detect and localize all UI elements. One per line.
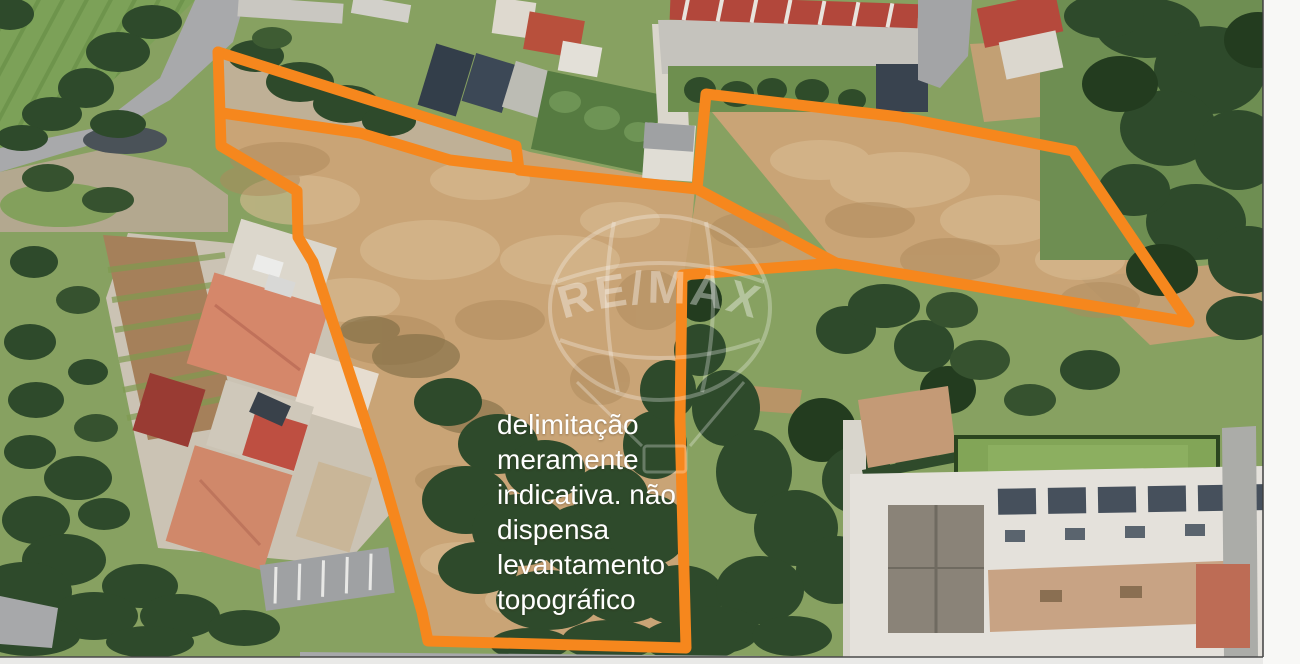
disclaimer-line: levantamento xyxy=(497,547,676,582)
disclaimer-line: indicativa. não xyxy=(497,477,676,512)
disclaimer-text: delimitação meramente indicativa. não di… xyxy=(497,407,676,617)
industrial-building xyxy=(658,0,928,112)
disclaimer-line: delimitação xyxy=(497,407,676,442)
disclaimer-line: meramente xyxy=(497,442,676,477)
aerial-photo: RE/MAX delimitação meramente indicativa.… xyxy=(0,0,1300,664)
disclaimer-line: dispensa xyxy=(497,512,676,547)
disclaimer-line: topográfico xyxy=(497,582,676,617)
pink-roof xyxy=(1196,564,1250,648)
